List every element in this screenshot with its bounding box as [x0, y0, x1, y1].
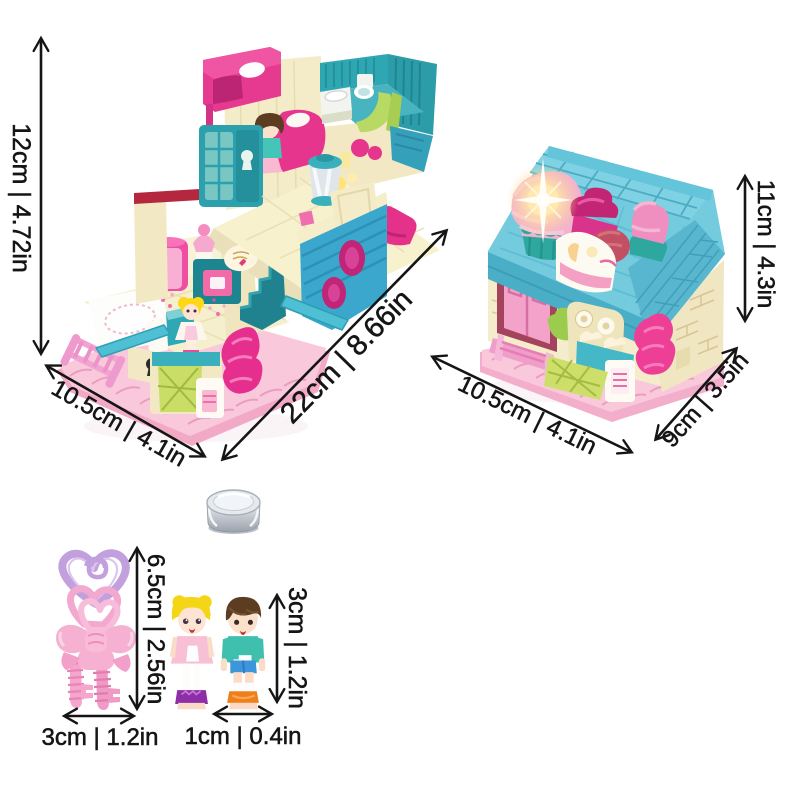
- svg-text:3cm | 1.2in: 3cm | 1.2in: [42, 724, 159, 751]
- svg-text:6.5cm | 2.56in: 6.5cm | 2.56in: [142, 554, 169, 704]
- svg-text:1cm | 0.4in: 1cm | 0.4in: [185, 723, 302, 750]
- svg-text:11cm | 4.3in: 11cm | 4.3in: [752, 180, 779, 309]
- svg-text:3cm | 1.2in: 3cm | 1.2in: [283, 587, 311, 709]
- svg-text:12cm | 4.72in: 12cm | 4.72in: [7, 123, 35, 273]
